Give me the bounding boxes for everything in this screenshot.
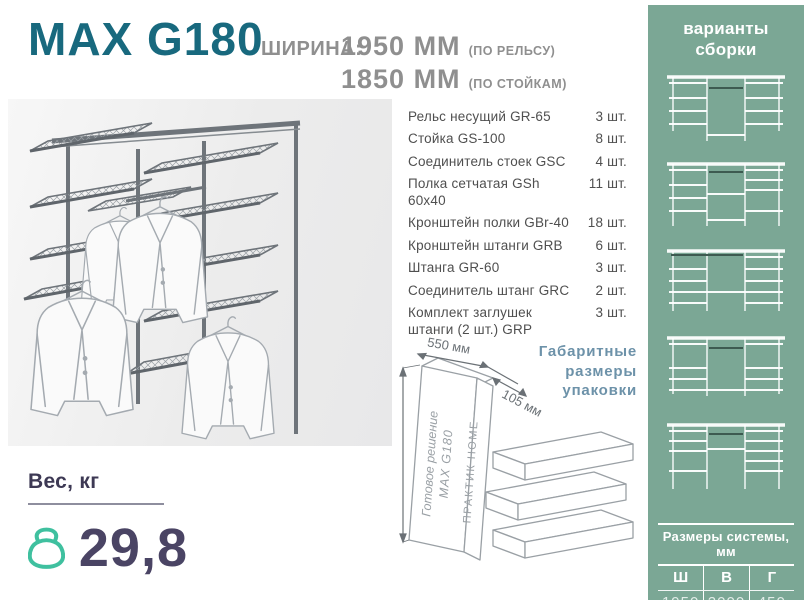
weight-block: Вес, кг 29,8 (28, 470, 188, 579)
system-sizes-table: Размеры системы, мм Ш В Г 1950 2000 450 (658, 523, 794, 600)
sidebar-title: варианты сборки (648, 18, 804, 61)
weight-label: Вес, кг (28, 470, 188, 494)
assembly-variant-2-icon (659, 158, 793, 230)
width-post-value: 1850 ММ (341, 64, 461, 95)
list-item: Соединитель штанг GRC2 шт. (408, 283, 627, 300)
width-label: ШИРИНА: (261, 38, 333, 61)
table-caption: Размеры системы, мм (658, 525, 794, 564)
list-item: Рельс несущий GR-653 шт. (408, 109, 627, 126)
package-size-label: Габаритные размеры упаковки (517, 342, 637, 401)
list-item: Кронштейн штанги GRB6 шт. (408, 238, 627, 255)
width-post-note: (ПО СТОЙКАМ) (469, 77, 567, 91)
val-height: 2000 (703, 591, 748, 600)
table-header-row: Ш В Г (658, 566, 794, 590)
assembly-variant-5-icon (659, 419, 793, 491)
col-width: Ш (658, 566, 703, 590)
list-item: Кронштейн полки GBr-4018 шт. (408, 215, 627, 232)
val-depth: 450 (749, 591, 794, 600)
weight-divider (28, 503, 164, 505)
list-item: Соединитель стоек GSC4 шт. (408, 154, 627, 171)
assembly-variants (648, 71, 804, 491)
col-depth: Г (749, 566, 794, 590)
width-rail-note: (ПО РЕЛЬСУ) (469, 44, 567, 58)
parts-list: Рельс несущий GR-653 шт. Стойка GS-1008 … (408, 109, 627, 344)
kettlebell-icon (28, 524, 65, 572)
page-title: MAX G180 (28, 12, 264, 66)
assembly-variant-3-icon (659, 245, 793, 317)
list-item: Стойка GS-1008 шт. (408, 131, 627, 148)
assembly-variant-4-icon (659, 332, 793, 404)
width-rail-value: 1950 ММ (341, 31, 461, 62)
assembly-variants-sidebar: варианты сборки (648, 5, 804, 600)
product-illustration (8, 99, 392, 446)
catalog-page: MAX G180 ШИРИНА: 1950 ММ (ПО РЕЛЬСУ) 185… (0, 0, 806, 600)
weight-value: 29,8 (79, 517, 188, 579)
val-width: 1950 (658, 591, 703, 600)
assembly-variant-1-icon (659, 71, 793, 143)
width-spec: ШИРИНА: 1950 ММ (ПО РЕЛЬСУ) 1850 ММ (ПО … (261, 31, 567, 95)
list-item: Штанга GR-603 шт. (408, 260, 627, 277)
col-height: В (703, 566, 748, 590)
list-item: Полка сетчатая GSh 60x4011 шт. (408, 176, 627, 210)
dim-width-label: 550 мм (426, 334, 471, 356)
wardrobe-drawing-icon (8, 99, 392, 446)
table-values-row: 1950 2000 450 (658, 591, 794, 600)
